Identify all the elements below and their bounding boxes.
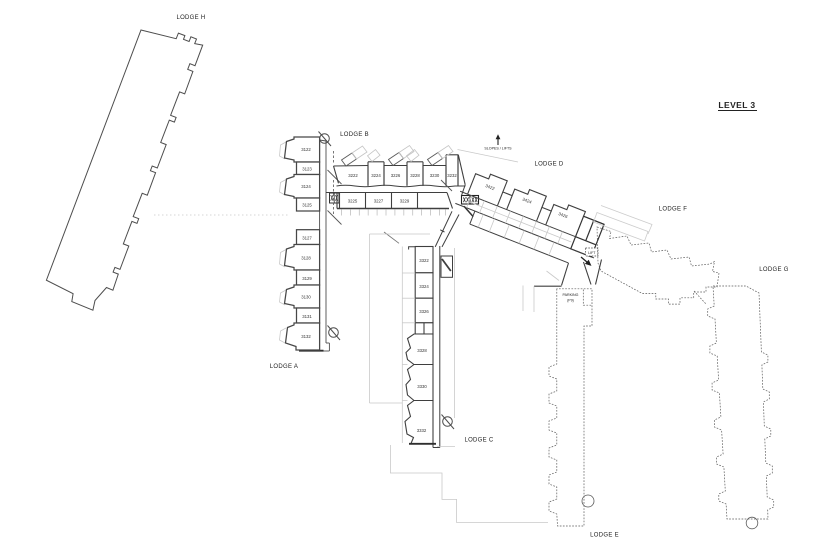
svg-text:3128: 3128: [301, 256, 311, 261]
svg-text:3129: 3129: [302, 276, 312, 281]
svg-text:3322: 3322: [419, 258, 429, 263]
svg-text:LODGE D: LODGE D: [534, 161, 563, 167]
svg-text:3332: 3332: [417, 428, 427, 433]
svg-text:3229: 3229: [400, 199, 410, 204]
svg-text:3131: 3131: [302, 314, 312, 319]
svg-text:3224: 3224: [371, 173, 381, 178]
svg-text:3124: 3124: [301, 184, 311, 189]
svg-text:3125: 3125: [302, 203, 312, 208]
svg-text:LODGE B: LODGE B: [340, 132, 369, 138]
svg-text:3225: 3225: [348, 199, 358, 204]
svg-text:3132: 3132: [301, 334, 311, 339]
svg-text:3328: 3328: [417, 348, 427, 353]
svg-text:3326: 3326: [419, 309, 429, 314]
svg-text:3222: 3222: [348, 173, 358, 178]
svg-text:3230: 3230: [430, 173, 440, 178]
svg-text:LODGE F: LODGE F: [659, 207, 687, 213]
svg-text:3122: 3122: [301, 147, 311, 152]
svg-text:3227: 3227: [374, 199, 384, 204]
svg-text:3324: 3324: [419, 284, 429, 289]
svg-text:3226: 3226: [391, 173, 401, 178]
svg-text:3228: 3228: [410, 173, 420, 178]
svg-text:LIFT: LIFT: [588, 251, 596, 255]
svg-text:3330: 3330: [417, 384, 427, 389]
svg-text:3232: 3232: [447, 173, 457, 178]
svg-text:3130: 3130: [301, 295, 311, 300]
svg-text:LODGE G: LODGE G: [759, 267, 788, 273]
svg-text:LODGE A: LODGE A: [270, 364, 298, 370]
svg-text:PARKING: PARKING: [563, 293, 579, 297]
svg-text:SLOPES / LIFTS: SLOPES / LIFTS: [484, 147, 512, 151]
svg-text:LODGE E: LODGE E: [590, 533, 619, 539]
svg-text:(P9): (P9): [567, 299, 574, 303]
svg-text:3127: 3127: [302, 236, 312, 241]
svg-text:LODGE C: LODGE C: [464, 438, 493, 444]
svg-text:LODGE H: LODGE H: [176, 15, 205, 21]
svg-text:LEVEL 3: LEVEL 3: [718, 100, 755, 110]
svg-text:3123: 3123: [302, 167, 312, 172]
